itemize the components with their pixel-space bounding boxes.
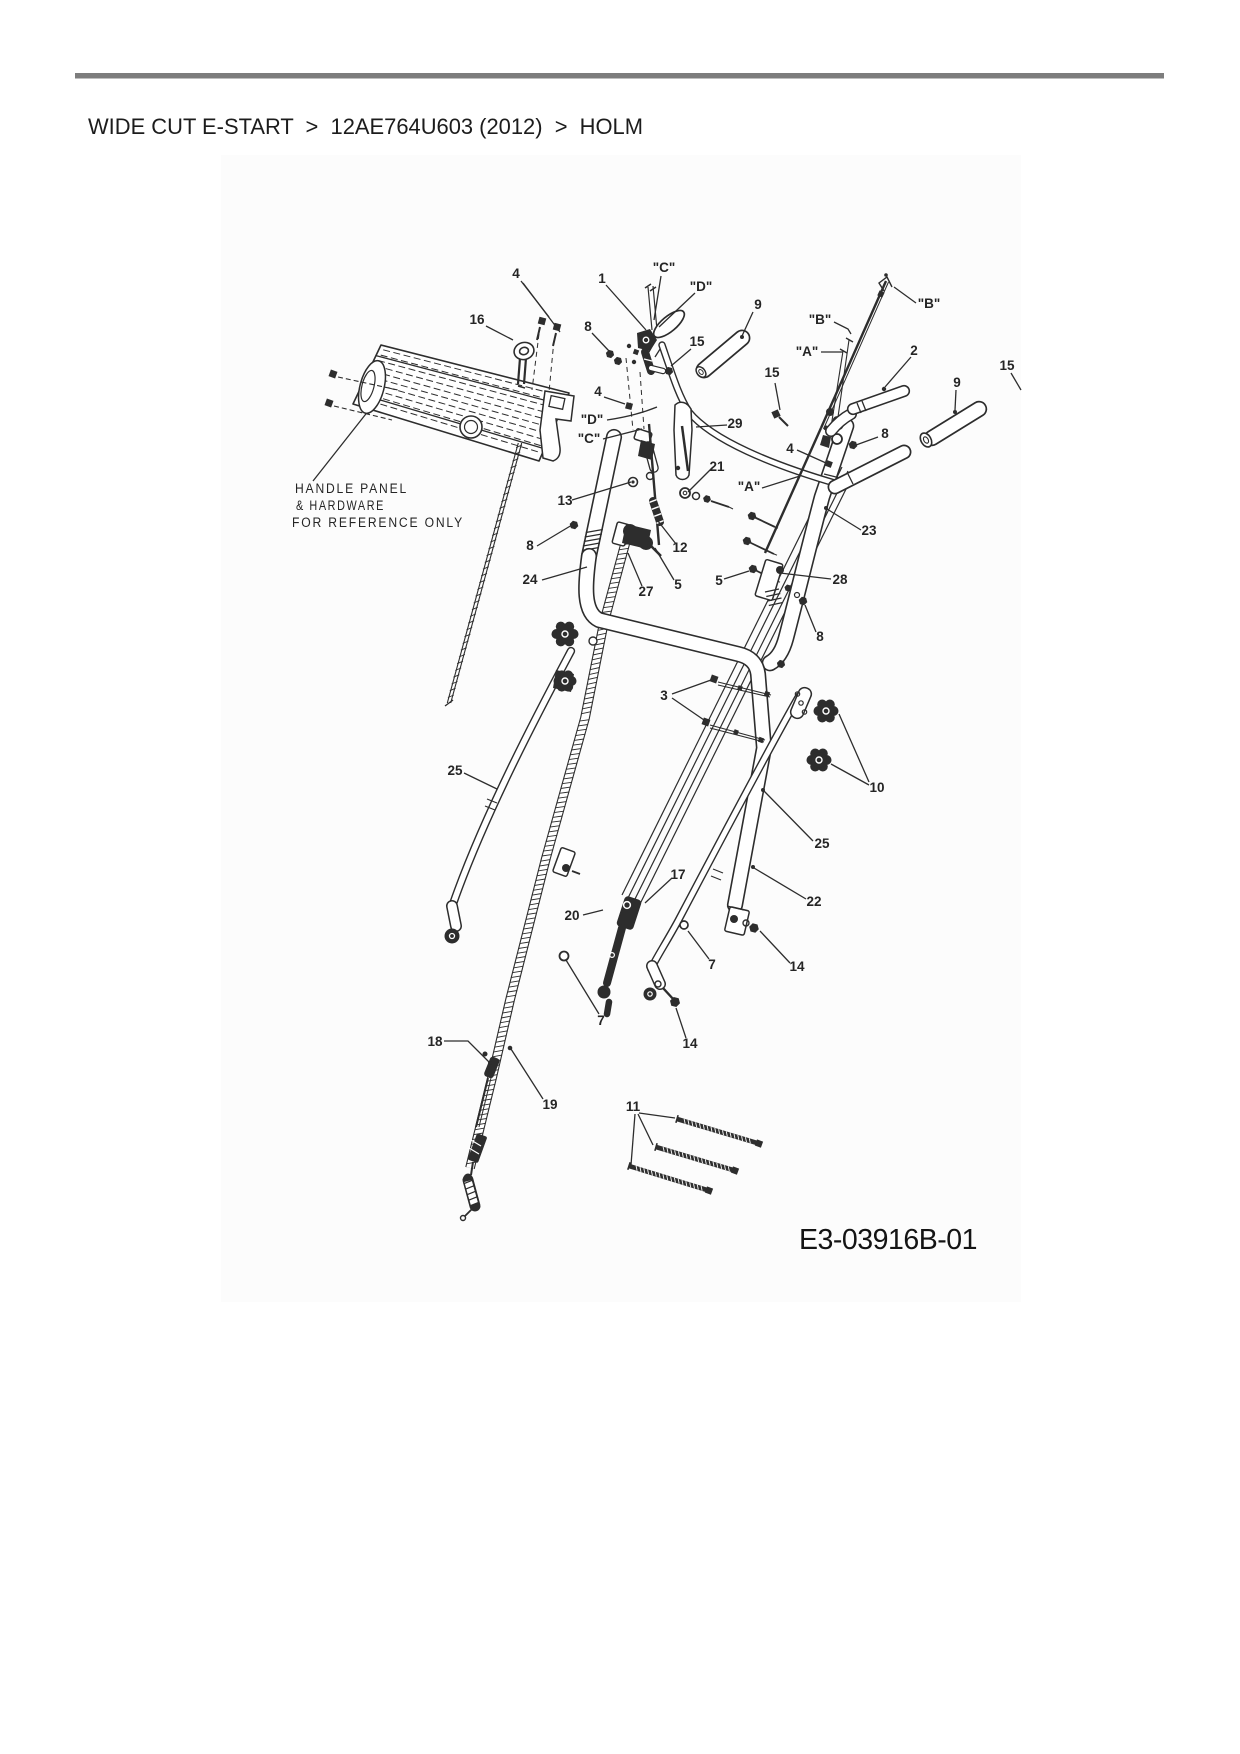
svg-text:"D": "D" xyxy=(690,279,713,294)
svg-text:25: 25 xyxy=(447,763,463,778)
svg-text:16: 16 xyxy=(469,312,485,327)
svg-text:8: 8 xyxy=(526,538,534,553)
svg-text:7: 7 xyxy=(708,957,716,972)
svg-text:5: 5 xyxy=(674,577,682,592)
svg-text:WIDE CUT E-START > 12AE764U6: WIDE CUT E-START > 12AE764U603 (2012) > … xyxy=(88,114,643,139)
svg-text:10: 10 xyxy=(869,780,884,795)
svg-text:15: 15 xyxy=(764,365,780,380)
svg-text:4: 4 xyxy=(512,266,520,281)
svg-text:2: 2 xyxy=(910,343,918,358)
svg-text:1: 1 xyxy=(598,271,606,286)
svg-text:14: 14 xyxy=(682,1036,698,1051)
svg-text:"A": "A" xyxy=(738,479,761,494)
svg-text:HANDLE PANEL: HANDLE PANEL xyxy=(295,481,408,496)
svg-text:8: 8 xyxy=(881,426,889,441)
svg-text:8: 8 xyxy=(816,629,824,644)
svg-text:"A": "A" xyxy=(796,344,819,359)
svg-text:"B": "B" xyxy=(918,296,941,311)
svg-text:14: 14 xyxy=(789,959,805,974)
svg-text:13: 13 xyxy=(557,493,573,508)
svg-text:17: 17 xyxy=(670,867,685,882)
svg-text:9: 9 xyxy=(754,297,762,312)
svg-text:24: 24 xyxy=(522,572,538,587)
svg-text:27: 27 xyxy=(638,584,653,599)
svg-text:15: 15 xyxy=(999,358,1015,373)
svg-text:29: 29 xyxy=(727,416,742,431)
svg-text:3: 3 xyxy=(660,688,668,703)
svg-text:E3-03916B-01: E3-03916B-01 xyxy=(799,1224,977,1256)
svg-text:"B": "B" xyxy=(809,312,832,327)
svg-text:22: 22 xyxy=(806,894,821,909)
svg-text:& HARDWARE: & HARDWARE xyxy=(296,498,385,513)
svg-text:18: 18 xyxy=(427,1034,443,1049)
svg-text:8: 8 xyxy=(584,319,592,334)
svg-text:21: 21 xyxy=(709,459,725,474)
svg-text:9: 9 xyxy=(953,375,961,390)
svg-text:15: 15 xyxy=(689,334,705,349)
svg-text:11: 11 xyxy=(626,1099,641,1114)
svg-text:23: 23 xyxy=(861,523,877,538)
svg-text:4: 4 xyxy=(786,441,794,456)
svg-text:"C": "C" xyxy=(578,431,601,446)
svg-text:5: 5 xyxy=(715,573,723,588)
svg-text:4: 4 xyxy=(594,384,602,399)
svg-text:FOR REFERENCE ONLY: FOR REFERENCE ONLY xyxy=(292,515,464,530)
svg-text:7: 7 xyxy=(597,1013,605,1028)
svg-text:"D": "D" xyxy=(581,412,604,427)
svg-text:20: 20 xyxy=(564,908,579,923)
svg-text:25: 25 xyxy=(814,836,830,851)
svg-text:19: 19 xyxy=(542,1097,557,1112)
svg-text:"C": "C" xyxy=(653,260,676,275)
svg-text:28: 28 xyxy=(832,572,848,587)
